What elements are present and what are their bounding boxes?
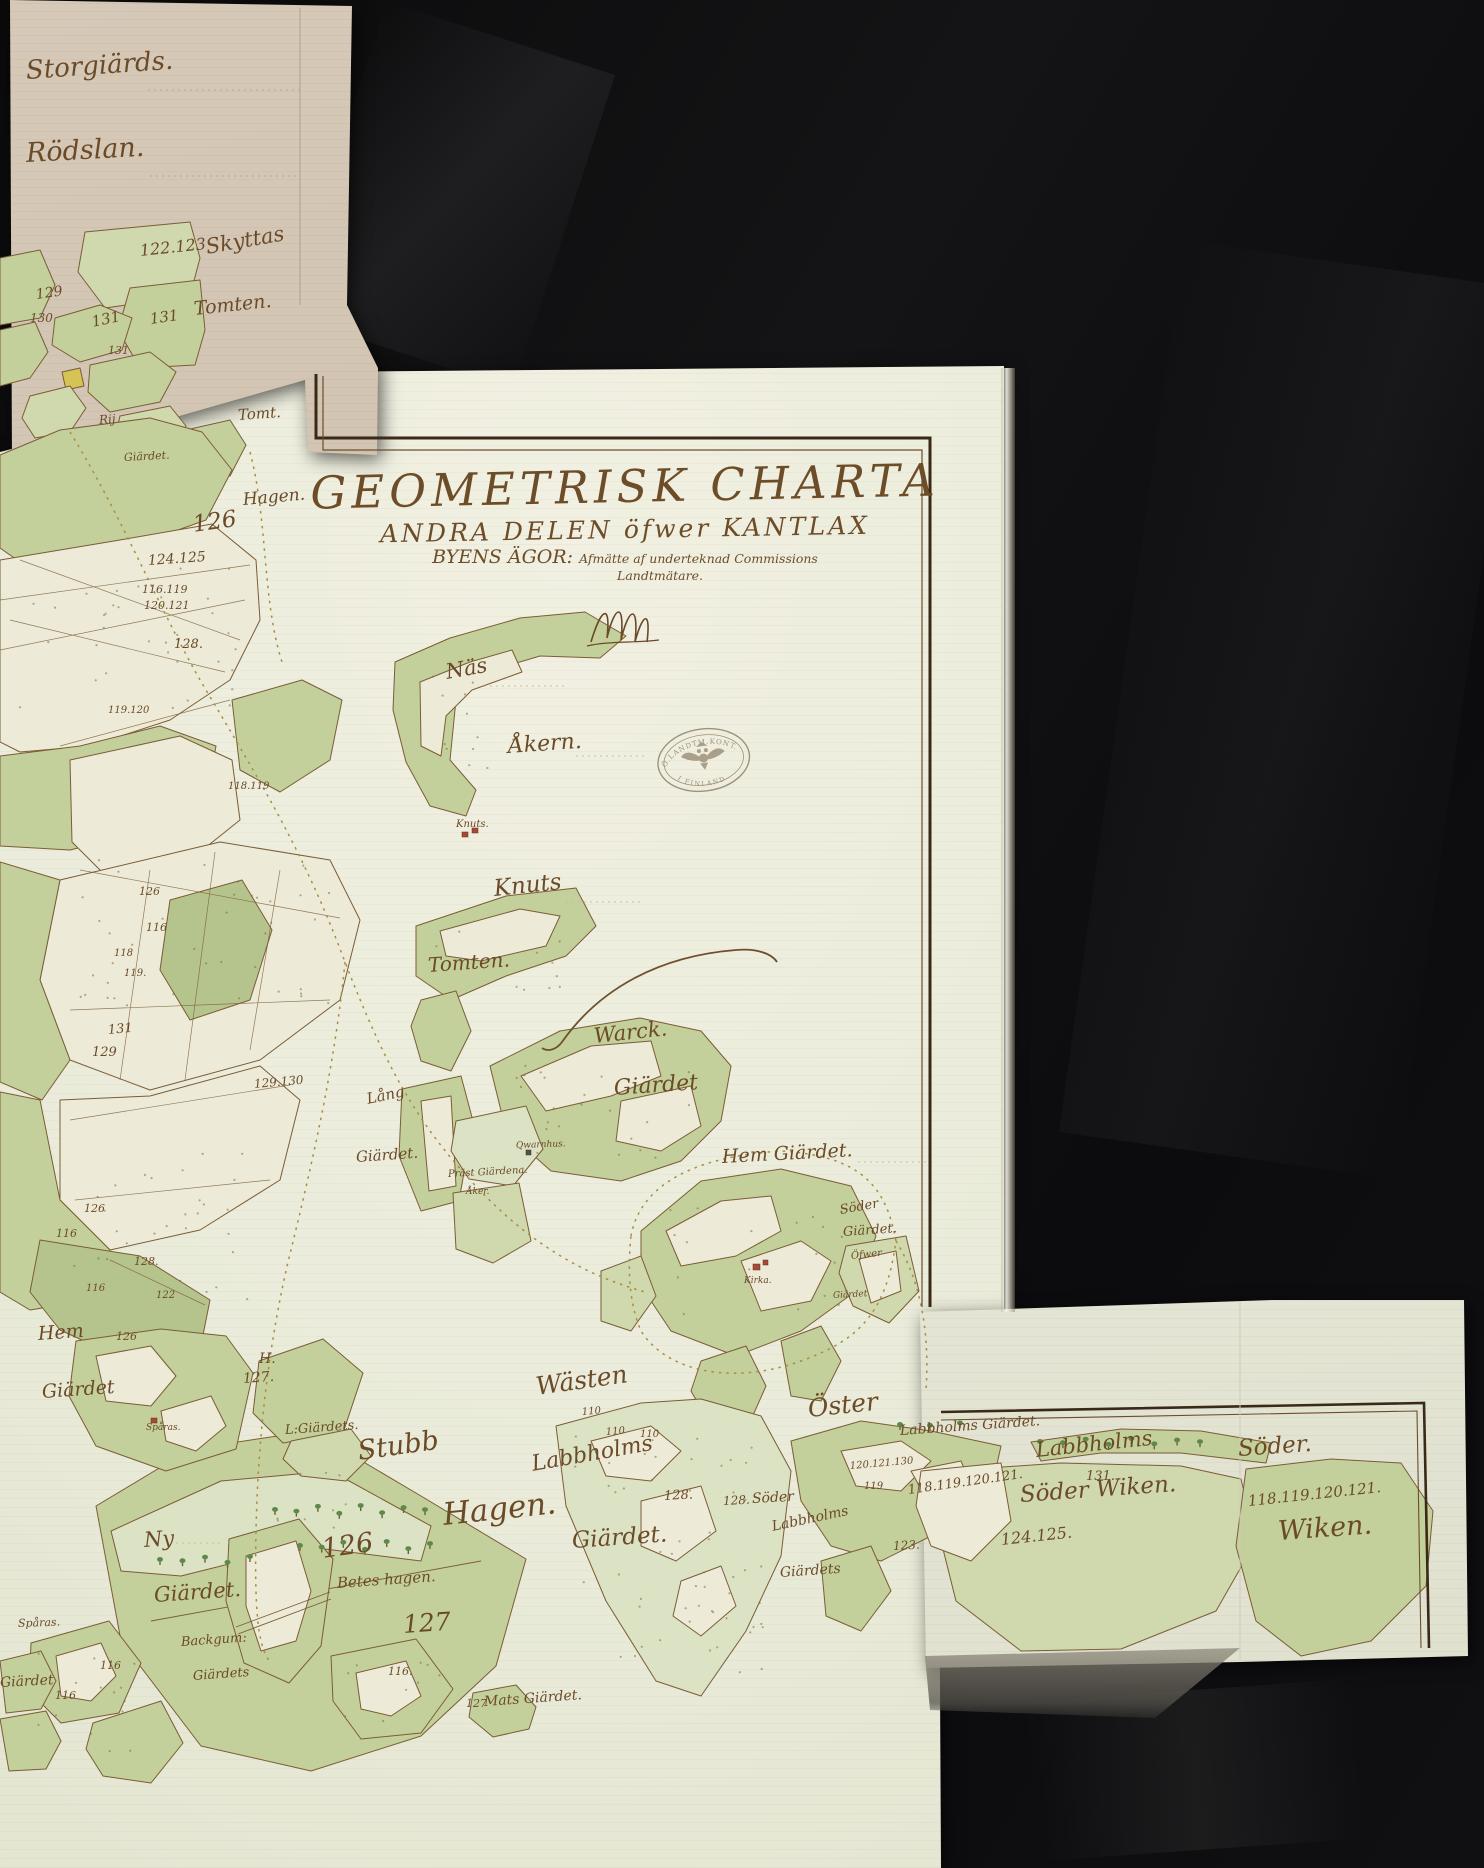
map-label-num-128-b: 128. xyxy=(723,1494,750,1507)
map-label-knuts-small: Knuts. xyxy=(456,820,489,830)
map-label-oster: Öster xyxy=(807,1389,879,1421)
map-label-num-118-a: 118 xyxy=(114,949,133,959)
map-label-num-131-d: 131 xyxy=(107,1022,133,1037)
map-label-ny: Ny xyxy=(143,1528,175,1551)
map-label-h-mark: H. xyxy=(259,1352,276,1366)
map-label-hem-2: Hem xyxy=(37,1322,84,1344)
map-label-num-128-c: 128. xyxy=(174,638,203,651)
surveyor-note-text: Afmätte af underteknad Commissions xyxy=(579,551,818,566)
map-label-num-126-big-cluster: 126 xyxy=(191,508,238,537)
map-label-num-126-d: 126 xyxy=(116,1331,137,1342)
map-label-num-127-c: 127. xyxy=(243,1370,275,1386)
map-label-num-118-119: 118.119 xyxy=(228,782,269,792)
map-label-num-126-big: 126 xyxy=(320,1529,375,1563)
map-label-num-124-125: 124.125 xyxy=(148,550,207,568)
map-label-wiken-right: Wiken. xyxy=(1277,1511,1373,1545)
map-label-sparas-1: Spåras. xyxy=(146,1424,180,1433)
map-label-num-126-b: 126 xyxy=(139,886,160,897)
map-label-num-116-119: 116.119 xyxy=(142,584,188,595)
map-label-num-122-a: 122 xyxy=(156,1291,175,1301)
map-label-sparas-2: Spåras. xyxy=(18,1617,60,1629)
map-label-num-129-tan: 129 xyxy=(35,284,63,302)
map-label-num-127-big: 127 xyxy=(402,1609,451,1637)
map-label-num-110-a: 110 xyxy=(582,1406,602,1418)
map-label-num-123-a: 123. xyxy=(893,1539,920,1552)
map-label-giardet-tan: Giärdet. xyxy=(124,450,170,463)
map-label-num-129-b: 129 xyxy=(92,1046,117,1059)
map-label-num-127-d: 127 xyxy=(466,1698,487,1709)
map-subtitle-line3: BYENS ÄGOR: Afmätte af underteknad Commi… xyxy=(300,546,950,568)
map-label-qwarnhus: Qwarnhus. xyxy=(516,1140,566,1151)
map-label-num-116-d: 116 xyxy=(100,1660,121,1671)
map-label-num-116-b: 116 xyxy=(56,1228,77,1239)
map-label-num-119-120: 119.120 xyxy=(108,706,149,716)
map-label-soder-mid: Söder xyxy=(752,1490,795,1506)
map-label-num-131-b: 131 xyxy=(149,308,179,327)
map-label-num-oster-2: 119 xyxy=(864,1482,883,1492)
map-label-kirka: Kirka. xyxy=(744,1277,772,1286)
map-label-soder-giardet-2: Giärdet. xyxy=(843,1222,898,1239)
map-label-num-119-a: 119. xyxy=(124,969,146,979)
map-label-tomten-main: Tomten. xyxy=(427,949,510,975)
map-label-num-130-tan: 130 xyxy=(30,312,53,324)
map-label-warck-giardet: Giärdet xyxy=(613,1072,699,1100)
map-label-giardet-bottom-left: Giärdet xyxy=(0,1673,54,1690)
map-label-backgum-num: 116. xyxy=(388,1666,413,1677)
field-parcels xyxy=(0,222,1433,1783)
map-label-backgum-giardets: Giärdets xyxy=(193,1666,250,1683)
map-label-num-116-c: 116 xyxy=(86,1284,105,1294)
map-label-hem-2-giardet: Giärdet xyxy=(41,1378,115,1402)
surveyor-signature xyxy=(583,596,667,656)
map-label-akern: Åkern. xyxy=(507,731,582,758)
map-label-rodslan: Rödslan. xyxy=(25,134,145,167)
surveyor-title-text: Landtmätare. xyxy=(300,568,950,583)
map-label-lang-giardet: Giärdet. xyxy=(355,1146,418,1165)
map-label-num-110-c: 110 xyxy=(640,1430,659,1440)
title-block: GEOMETRISK CHARTA ANDRA DELEN öfwer KANT… xyxy=(300,460,950,583)
map-label-num-128-a: 128. xyxy=(664,1488,694,1502)
office-stamp: Ö.LANDTM.KONT. I FINLAND xyxy=(634,706,774,819)
map-label-rij: Rij xyxy=(98,413,116,426)
map-label-num-116-a: 116 xyxy=(146,922,167,933)
map-label-num-110-b: 110 xyxy=(606,1426,626,1438)
map-label-ofwer-giardet: Giärdet xyxy=(833,1290,868,1301)
map-label-num-120-121: 120.121 xyxy=(144,600,190,611)
map-title: GEOMETRISK CHARTA xyxy=(300,453,951,520)
map-label-soder-right: Söder. xyxy=(1237,1433,1312,1461)
map-label-num-128-d: 128. xyxy=(134,1256,159,1267)
map-photograph: GEOMETRISK CHARTA ANDRA DELEN öfwer KANT… xyxy=(0,0,1484,1868)
map-label-num-131-c: 131 xyxy=(108,345,129,356)
map-label-tomt: Tomt. xyxy=(237,405,281,423)
map-label-aker-small: Åker. xyxy=(466,1188,489,1197)
map-label-giardets-mid: Giärdets xyxy=(780,1562,842,1580)
map-label-num-126-c: 126 xyxy=(84,1203,105,1214)
map-label-num-116-e: 116 xyxy=(55,1690,76,1701)
paper-fold-lines xyxy=(300,8,1240,1660)
byens-agor-text: BYENS ÄGOR: xyxy=(432,546,573,568)
